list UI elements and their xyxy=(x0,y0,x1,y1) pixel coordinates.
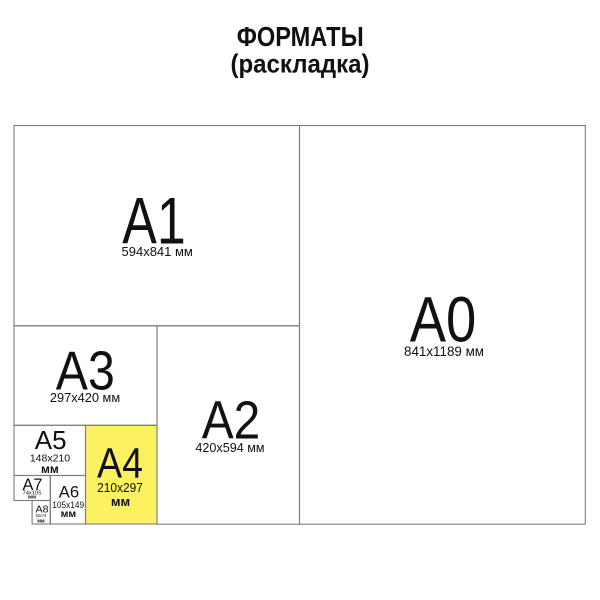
svg-text:ФОРМАТЫ: ФОРМАТЫ xyxy=(237,21,364,52)
svg-text:мм: мм xyxy=(111,494,130,509)
svg-text:мм: мм xyxy=(41,462,59,476)
svg-text:297x420 мм: 297x420 мм xyxy=(50,390,120,405)
svg-text:(раскладка): (раскладка) xyxy=(231,49,370,79)
svg-text:210x297: 210x297 xyxy=(97,480,143,495)
svg-text:мм: мм xyxy=(28,495,36,501)
svg-text:A5: A5 xyxy=(35,425,67,455)
svg-text:A6: A6 xyxy=(59,482,79,501)
svg-text:мм: мм xyxy=(37,518,45,524)
svg-text:52x74: 52x74 xyxy=(36,513,47,518)
svg-text:841x1189 мм: 841x1189 мм xyxy=(404,344,484,359)
svg-text:мм: мм xyxy=(61,508,77,520)
svg-text:420x594 мм: 420x594 мм xyxy=(195,441,264,455)
svg-text:594x841 мм: 594x841 мм xyxy=(122,244,193,259)
